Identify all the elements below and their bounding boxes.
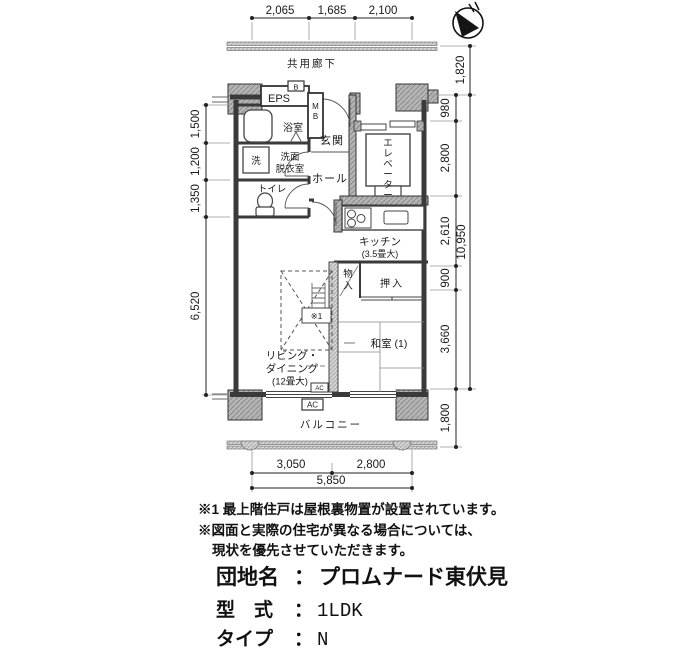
label-eps: EPS — [268, 93, 290, 105]
label-entrance: 玄関 — [320, 133, 344, 147]
dim-right-4: 900 — [440, 268, 452, 287]
label-note-ref: ※1 — [311, 311, 323, 321]
dim-left-2: 1,200 — [190, 147, 202, 176]
corridor-rail — [227, 42, 437, 51]
note-line: ※1 最上階住戸は屋根裏物置が設置されています。 — [198, 500, 505, 521]
info-value: N — [317, 629, 328, 650]
floorplan-page: 共用廊下 バルコニー — [0, 0, 700, 650]
label-elevator: エ レ ベ ー タ ー — [383, 138, 393, 202]
dim-right-outer-1: 1,820 — [455, 56, 467, 85]
note-line: 現状を優先させていただきます。 — [198, 541, 505, 562]
dim-right-2: 2,800 — [440, 144, 452, 173]
balcony-rail — [227, 441, 437, 450]
label-washroom-1: 洗面 — [280, 151, 299, 163]
label-meter-b: B — [293, 83, 298, 92]
kitchen-counter — [342, 206, 424, 230]
info-value: 1LDK — [317, 600, 363, 622]
label-washer: 洗 — [251, 155, 261, 167]
dim-left-3: 1,350 — [190, 184, 202, 213]
label-living-size: (12畳大) — [272, 376, 308, 388]
dim-right-6: 1,800 — [440, 404, 452, 433]
svg-text:レ: レ — [383, 149, 393, 160]
dim-top-3: 2,100 — [369, 5, 398, 17]
dim-right-5: 3,660 — [440, 325, 452, 354]
info-label: タイプ — [216, 624, 294, 650]
label-japanese-room: 和室 (1) — [371, 337, 408, 350]
label-kitchen-size: (3.5畳大) — [362, 248, 399, 259]
label-kitchen: キッチン — [359, 236, 401, 248]
label-hall: ホール — [312, 172, 348, 185]
sink-icon — [384, 211, 408, 224]
label-living-1: リビング・ — [266, 349, 319, 362]
label-mb-m: M — [312, 102, 319, 111]
dim-bottom-total: 5,850 — [317, 475, 346, 487]
info-separator: ： — [294, 595, 313, 622]
label-bath: 浴室 — [283, 121, 303, 134]
info-row-type: 型 式：1LDK — [216, 595, 508, 622]
label-washroom-2: 脱衣室 — [276, 163, 305, 175]
dim-bottom-2: 2,800 — [357, 459, 386, 471]
svg-text:ー: ー — [383, 170, 393, 181]
info-label: 型 式 — [216, 595, 294, 622]
dim-right-3: 2,610 — [440, 217, 452, 246]
north-arrow-icon — [453, 2, 483, 38]
label-storage-1: 物 — [343, 268, 353, 280]
svg-text:ー: ー — [383, 191, 393, 202]
svg-text:エ: エ — [383, 138, 393, 149]
svg-text:ベ: ベ — [383, 159, 393, 170]
label-living-2: ダイニング — [266, 362, 319, 375]
toilet-icon — [256, 193, 274, 216]
tatami-lines — [338, 322, 424, 392]
fusuma-doors — [361, 297, 424, 300]
dim-right-1: 980 — [440, 98, 452, 117]
svg-text:タ: タ — [383, 180, 393, 191]
label-ac-outdoor: AC — [307, 401, 318, 410]
bathtub-icon — [244, 110, 272, 142]
label-toilet: トイレ — [258, 184, 287, 195]
info-row-danchi: 団地名：プロムナード東伏見 — [216, 561, 508, 591]
dim-left-1: 1,500 — [190, 110, 202, 139]
floorplan-drawing: 共用廊下 バルコニー — [0, 0, 700, 497]
label-balcony: バルコニー — [300, 419, 362, 431]
dim-left-4: 6,520 — [190, 292, 202, 321]
label-corridor: 共用廊下 — [287, 57, 337, 70]
label-ac-indoor: AC — [315, 386, 324, 392]
dim-top-1: 2,065 — [266, 5, 295, 17]
info-row-plan-type: タイプ：N — [216, 624, 508, 650]
notes-block: ※1 最上階住戸は屋根裏物置が設置されています。 ※図面と実際の住宅が異なる場合… — [198, 500, 505, 562]
dim-right-outer-2: 10,950 — [456, 224, 468, 259]
info-separator: ： — [294, 561, 315, 591]
property-info-block: 団地名：プロムナード東伏見 型 式：1LDK タイプ：N 図面No：20549 — [216, 561, 508, 650]
info-separator: ： — [294, 624, 313, 650]
sliding-partition — [329, 262, 338, 392]
dim-bottom-1: 3,050 — [277, 459, 306, 471]
label-storage-2: 入 — [343, 281, 353, 292]
info-label: 団地名 — [216, 561, 294, 591]
info-value: プロムナード東伏見 — [319, 561, 508, 591]
dim-top-2: 1,685 — [318, 5, 347, 17]
label-mb-b: B — [313, 112, 318, 121]
note-line: ※図面と実際の住宅が異なる場合については、 — [198, 521, 505, 542]
label-closet: 押入 — [380, 277, 404, 290]
